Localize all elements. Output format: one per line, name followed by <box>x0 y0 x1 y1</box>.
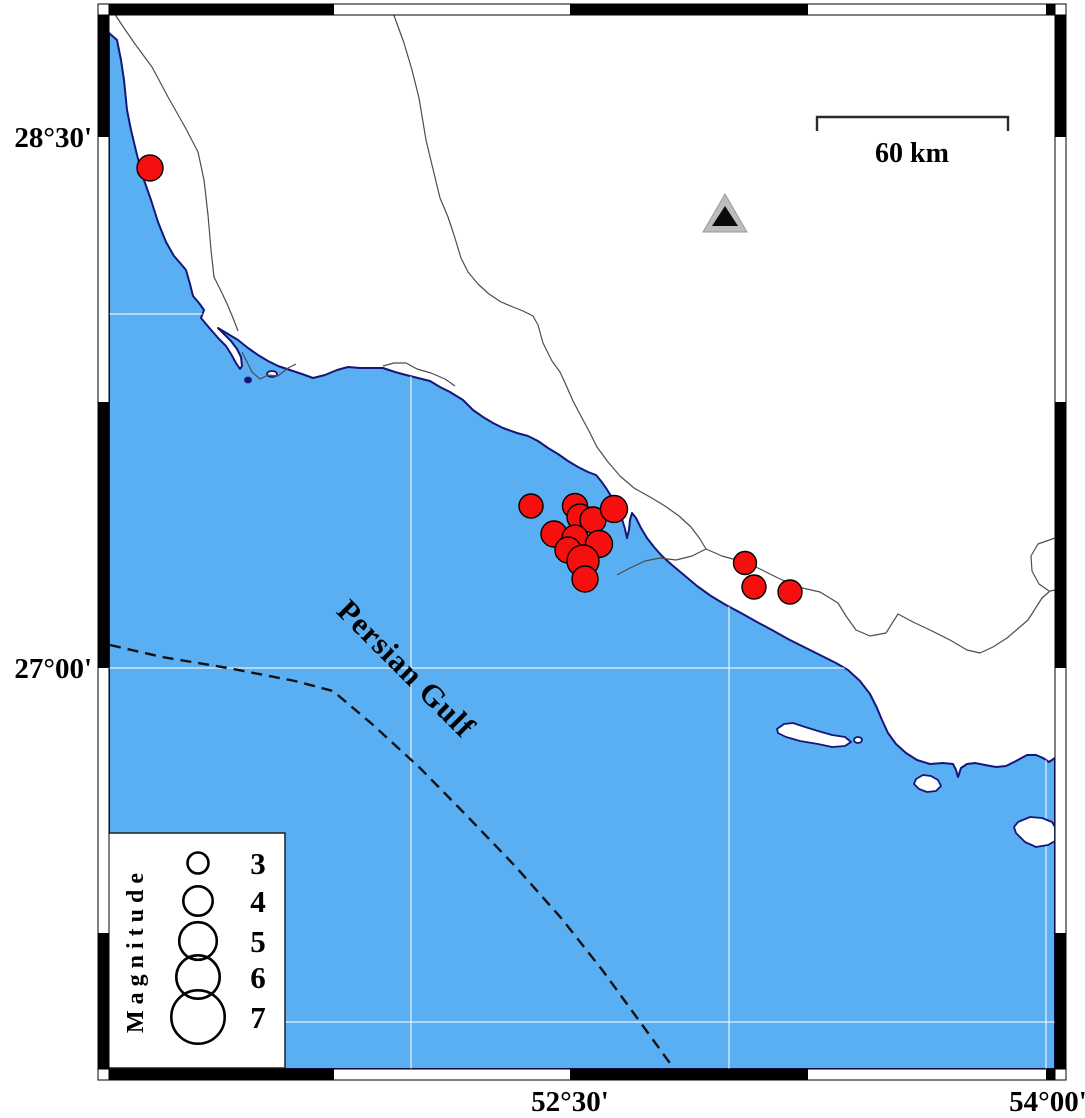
legend-title: Magnitude <box>123 867 149 1033</box>
earthquake-marker <box>778 580 802 604</box>
legend-value: 4 <box>250 884 266 919</box>
frame-segment <box>1055 933 1066 1069</box>
frame-segment <box>109 1069 334 1080</box>
legend-value: 7 <box>250 1000 266 1035</box>
legend-value: 6 <box>250 960 266 995</box>
lat-label: 28°30' <box>14 122 92 154</box>
frame-segment <box>1046 4 1055 15</box>
magnitude-legend: Magnitude 34567 <box>108 833 285 1068</box>
inland-boundary-line <box>1031 538 1055 591</box>
scale-bar: 60 km <box>817 117 1008 169</box>
frame-segment <box>1055 15 1066 137</box>
lat-label: 27°00' <box>14 653 92 685</box>
frame-corner-square <box>1055 4 1066 15</box>
earthquake-marker <box>734 552 757 575</box>
frame-segment <box>1055 402 1066 668</box>
frame-segment <box>1046 1069 1055 1080</box>
frame-corner-square <box>1055 1069 1066 1080</box>
frame-segment <box>98 933 109 1069</box>
scale-bar-label: 60 km <box>875 138 949 169</box>
frame-segment <box>570 4 808 15</box>
legend-value: 3 <box>250 846 266 881</box>
earthquake-marker <box>519 494 543 518</box>
frame-segment <box>98 15 109 137</box>
frame-segment <box>98 402 109 668</box>
seismic-station-triangle-icon <box>703 194 747 232</box>
frame-corner-square <box>98 4 109 15</box>
lon-label: 54°00' <box>1009 1086 1085 1118</box>
earthquake-marker <box>742 575 766 599</box>
islet <box>245 378 251 383</box>
frame-corner-square <box>98 1069 109 1080</box>
earthquake-epicenter-map: Persian Gulf 60 km Magnitude 34567 28°30… <box>0 0 1085 1118</box>
frame-segment <box>570 1069 808 1080</box>
lon-label: 52°30' <box>531 1086 609 1118</box>
earthquake-marker <box>572 566 598 592</box>
frame-segment <box>109 4 334 15</box>
earthquake-marker <box>137 155 163 181</box>
earthquake-marker <box>601 496 628 523</box>
islet <box>854 737 862 743</box>
legend-value: 5 <box>250 924 266 959</box>
